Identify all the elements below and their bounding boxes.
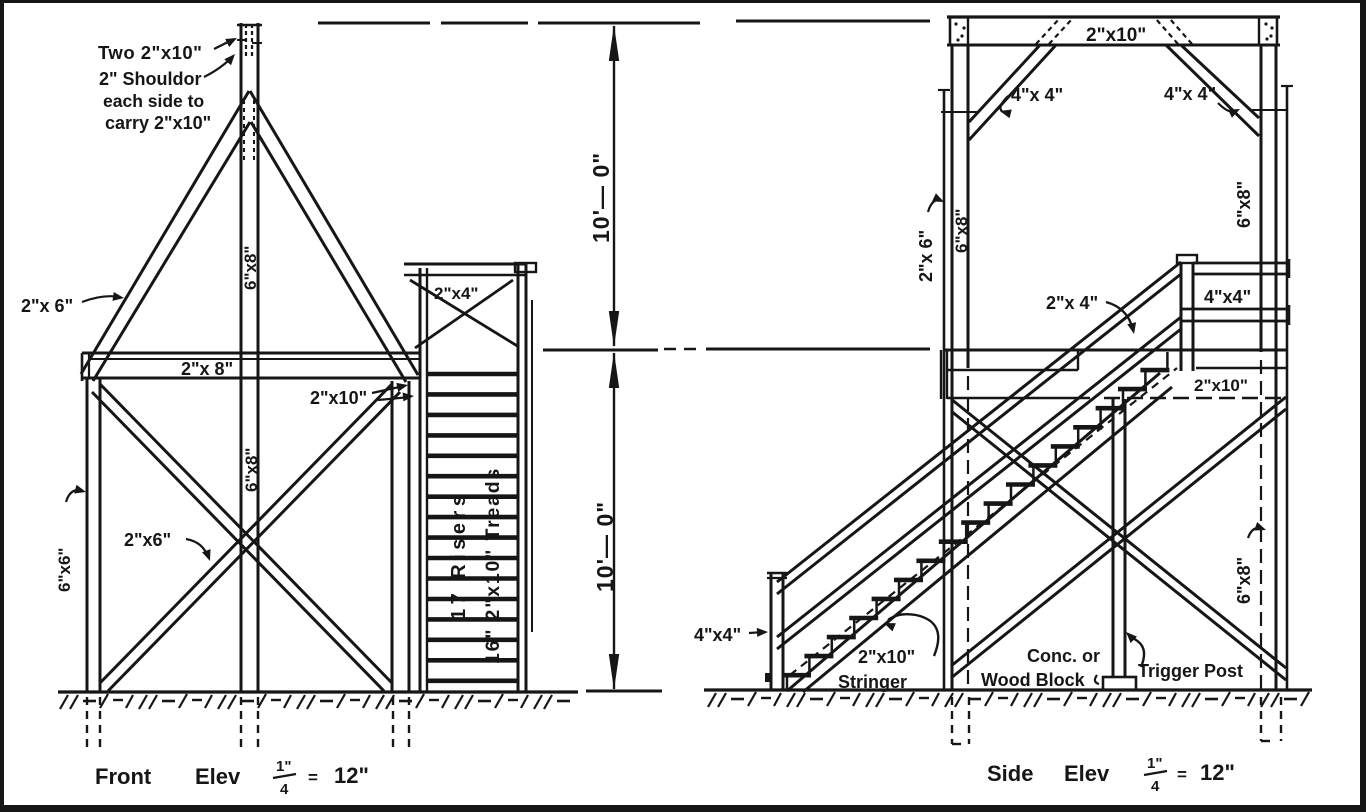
svg-text:=: = [1177, 765, 1187, 784]
svg-text:carry 2"x10": carry 2"x10" [105, 113, 211, 133]
svg-text:6"x6": 6"x6" [55, 548, 74, 592]
svg-text:=: = [308, 768, 318, 787]
svg-text:Side: Side [987, 761, 1033, 786]
svg-text:2" Shouldor: 2" Shouldor [99, 69, 202, 89]
svg-text:4"x 4": 4"x 4" [1011, 85, 1063, 105]
svg-text:2"x10": 2"x10" [1086, 25, 1146, 46]
svg-text:each side to: each side to [103, 91, 204, 111]
svg-text:6"x8": 6"x8" [241, 246, 260, 290]
svg-text:2"x10": 2"x10" [858, 647, 915, 667]
svg-text:10'— 0": 10'— 0" [592, 501, 618, 592]
svg-text:6"x8": 6"x8" [1234, 557, 1254, 604]
svg-text:Two 2"x10": Two 2"x10" [98, 42, 202, 63]
svg-text:4"x 4": 4"x 4" [1164, 84, 1216, 104]
svg-text:4: 4 [1151, 778, 1160, 795]
svg-text:2"x4": 2"x4" [434, 284, 478, 303]
svg-text:4"x4": 4"x4" [1204, 287, 1251, 307]
svg-text:2"x10": 2"x10" [1194, 376, 1248, 395]
svg-text:2"x 6": 2"x 6" [21, 296, 73, 316]
svg-text:1": 1" [276, 758, 291, 775]
svg-text:Wood Block: Wood Block [981, 670, 1086, 690]
svg-text:6"x8": 6"x8" [242, 448, 261, 492]
svg-text:2"x 6": 2"x 6" [916, 230, 936, 282]
svg-text:16" 2"x10" Treads: 16" 2"x10" Treads [482, 467, 504, 664]
svg-text:10'— 0": 10'— 0" [588, 152, 614, 243]
svg-text:12": 12" [334, 763, 369, 788]
svg-text:2"x10": 2"x10" [310, 388, 367, 408]
svg-text:Elev: Elev [1064, 761, 1110, 786]
svg-text:4: 4 [280, 781, 289, 798]
svg-text:Conc. or: Conc. or [1027, 646, 1100, 666]
svg-text:2"x 8": 2"x 8" [181, 359, 233, 379]
svg-text:1": 1" [1147, 755, 1162, 772]
svg-text:Elev: Elev [195, 764, 241, 789]
svg-text:12": 12" [1200, 760, 1235, 785]
svg-text:2"x 4": 2"x 4" [1046, 293, 1098, 313]
svg-text:2"x6": 2"x6" [124, 530, 171, 550]
svg-text:17 Risers: 17 Risers [448, 491, 470, 620]
svg-text:4"x4": 4"x4" [694, 625, 741, 645]
svg-text:Front: Front [95, 764, 152, 789]
svg-text:Trigger Post: Trigger Post [1138, 661, 1243, 681]
svg-text:6"x8": 6"x8" [952, 209, 971, 253]
svg-text:6"x8": 6"x8" [1234, 181, 1254, 228]
